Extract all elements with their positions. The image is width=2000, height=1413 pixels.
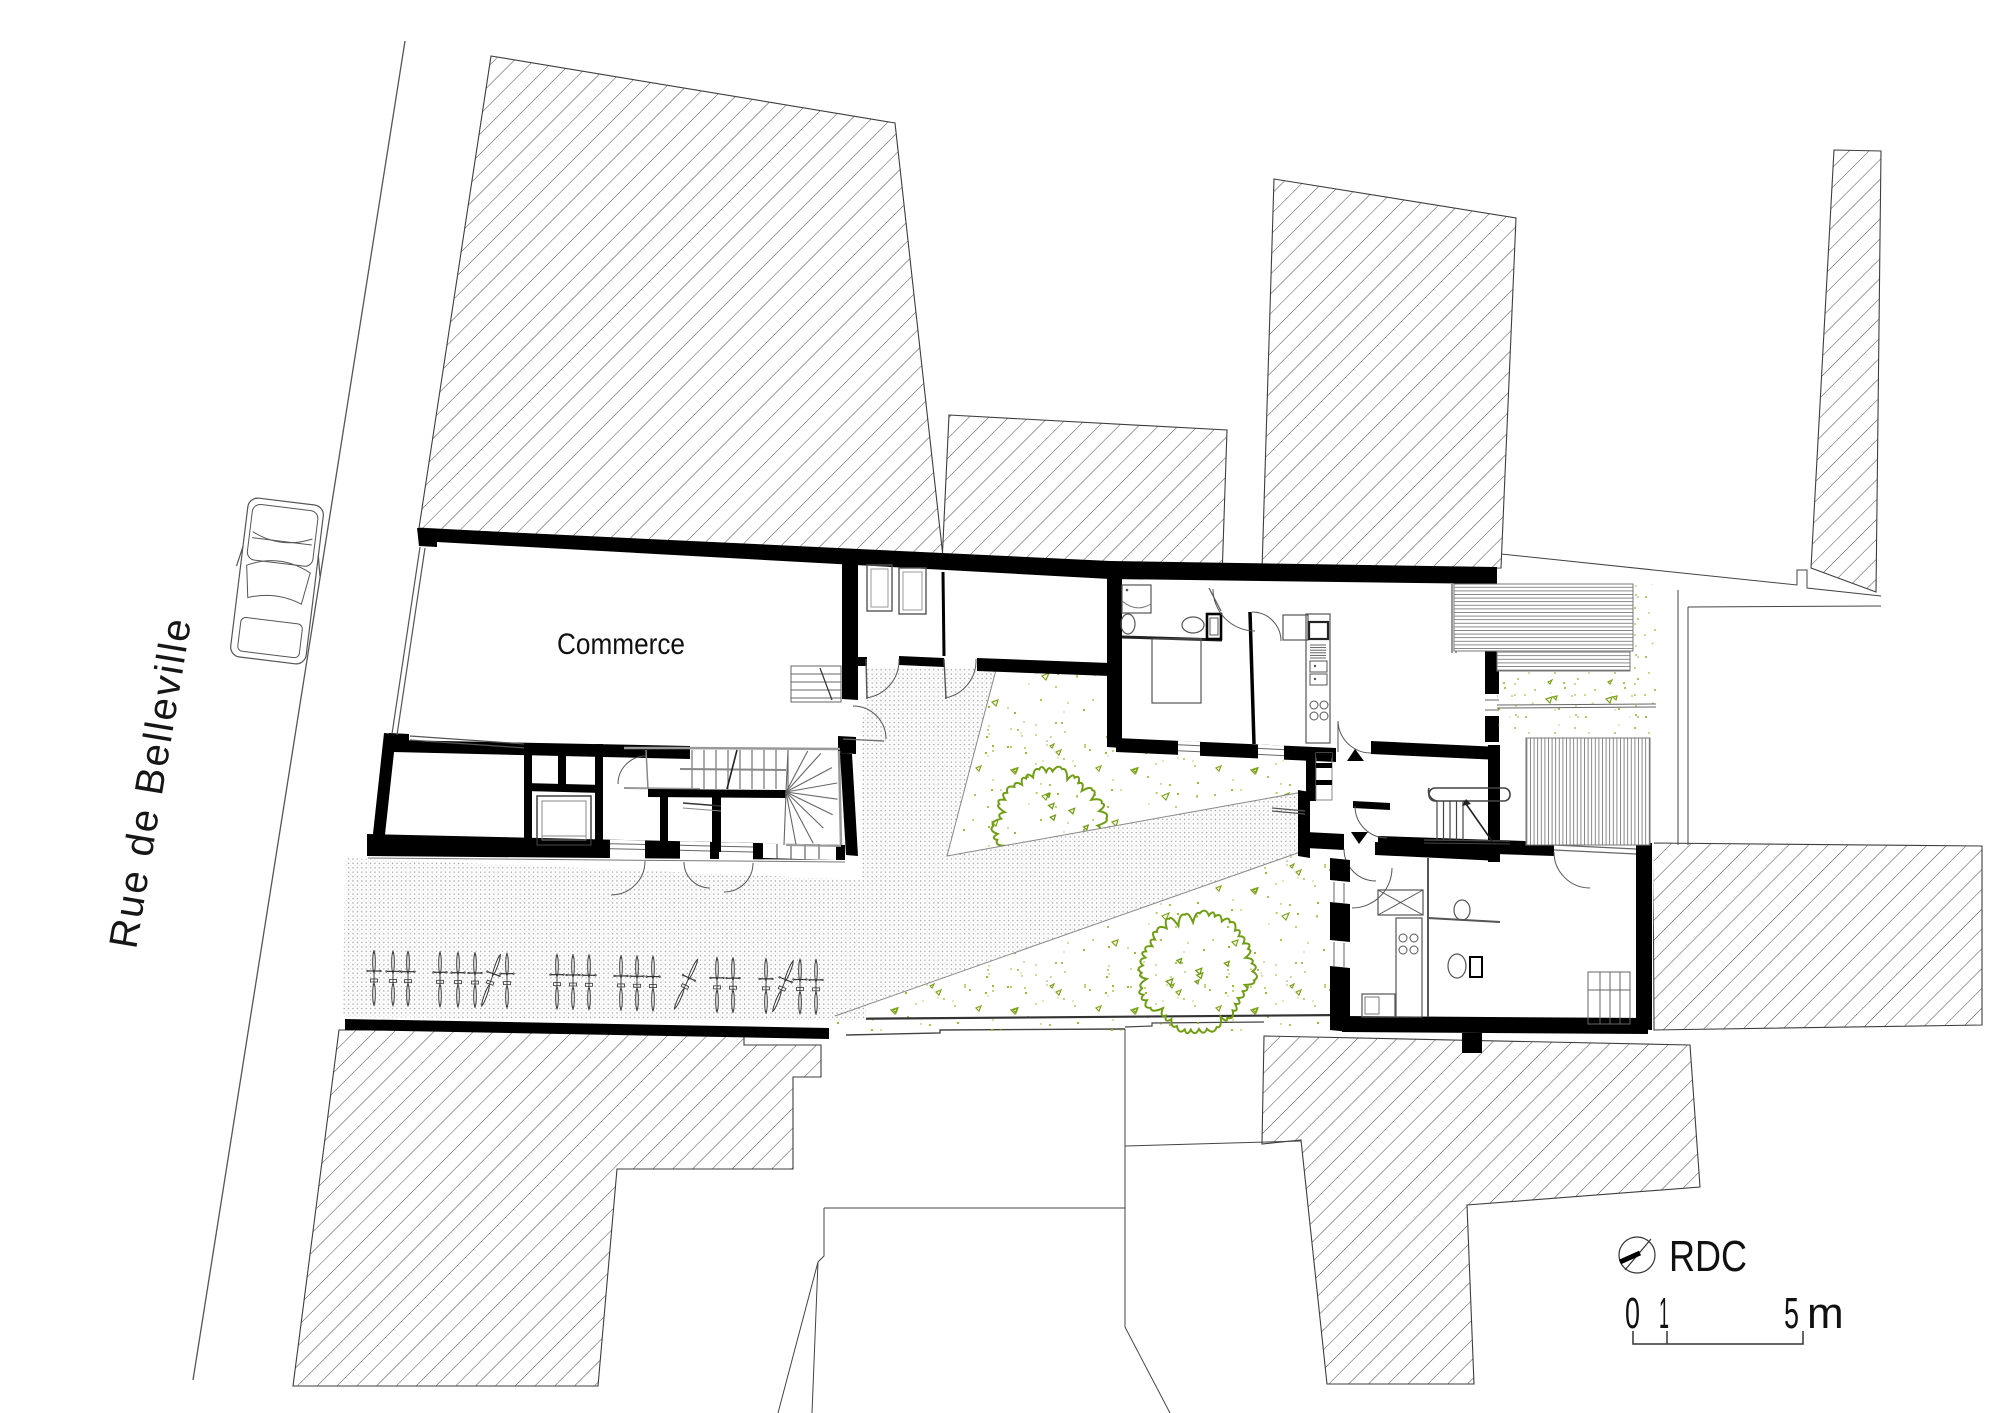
svg-text:Commerce: Commerce	[557, 628, 685, 661]
svg-text:5: 5	[1784, 1289, 1799, 1338]
svg-text:0: 0	[1625, 1289, 1640, 1338]
svg-text:RDC: RDC	[1669, 1232, 1747, 1281]
svg-text:1: 1	[1659, 1289, 1669, 1338]
svg-text:m: m	[1807, 1289, 1844, 1338]
